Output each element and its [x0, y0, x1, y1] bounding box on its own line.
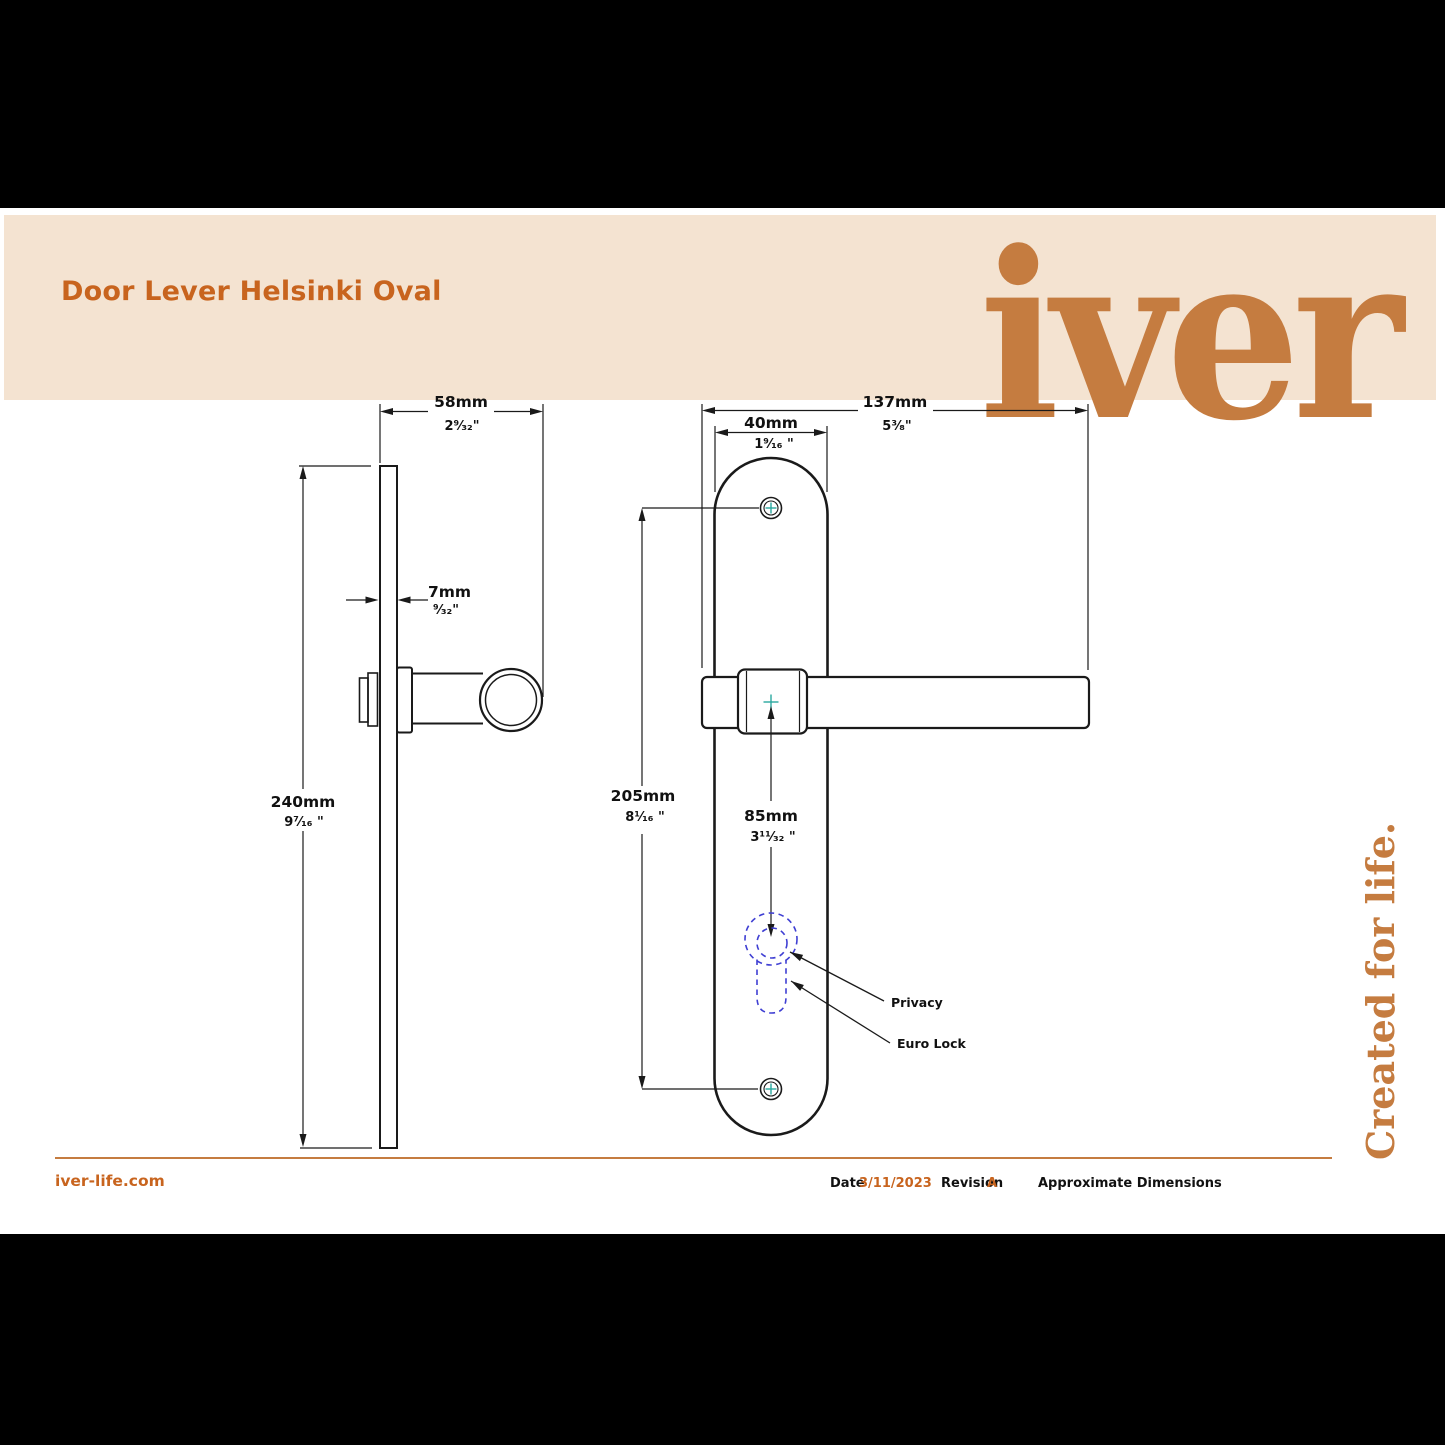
lever-collar-side [397, 668, 412, 733]
label-137mm: 137mm [863, 393, 928, 411]
dim-thickness-7mm [346, 597, 428, 604]
date-value: 3/11/2023 [859, 1176, 932, 1191]
spec-sheet-page: Door Lever Helsinki Oval iver 58mm 2⁹⁄₃₂… [0, 0, 1445, 1445]
approximate-dimensions-note: Approximate Dimensions [1038, 1176, 1222, 1191]
label-85mm: 85mm [744, 807, 798, 825]
label-7mm: 7mm [428, 583, 471, 601]
dim-projection-58mm [380, 404, 543, 697]
side-view [360, 466, 543, 1148]
brand-tagline: Created for life. [1358, 858, 1416, 1160]
label-7mm-in: ⁹⁄₃₂" [433, 603, 459, 618]
leader-privacy [790, 952, 884, 1001]
label-58mm: 58mm [434, 393, 488, 411]
website-link[interactable]: iver-life.com [55, 1172, 165, 1190]
leader-euro-lock [791, 981, 890, 1043]
label-85mm-in: 3¹¹⁄₃₂ " [750, 830, 795, 845]
label-40mm-in: 1⁹⁄₁₆ " [754, 437, 794, 452]
label-240mm: 240mm [271, 793, 336, 811]
label-40mm: 40mm [744, 414, 798, 432]
label-58mm-in: 2⁹⁄₃₂" [444, 419, 479, 434]
privacy-label: Privacy [891, 995, 943, 1010]
label-205mm-in: 8¹⁄₁₆ " [625, 810, 665, 825]
technical-drawing: 58mm 2⁹⁄₃₂" 7mm ⁹⁄₃₂" 240mm 9⁷⁄₁₆ " [0, 0, 1445, 1445]
label-240mm-in: 9⁷⁄₁₆ " [284, 815, 324, 830]
spindle-end-inner [368, 673, 378, 726]
footer-divider [55, 1157, 1332, 1159]
euro-cylinder-stem [757, 960, 786, 1014]
label-137mm-in: 5³⁄₈" [882, 419, 911, 434]
backplate-side-profile [380, 466, 397, 1148]
label-205mm: 205mm [611, 787, 676, 805]
revision-value: A [987, 1176, 997, 1191]
spindle-end-outer [360, 678, 369, 722]
lever-grip-end-outer [480, 669, 542, 731]
euro-lock-label: Euro Lock [897, 1036, 967, 1051]
front-view [702, 458, 1089, 1135]
letterbox-bottom [0, 1234, 1445, 1445]
